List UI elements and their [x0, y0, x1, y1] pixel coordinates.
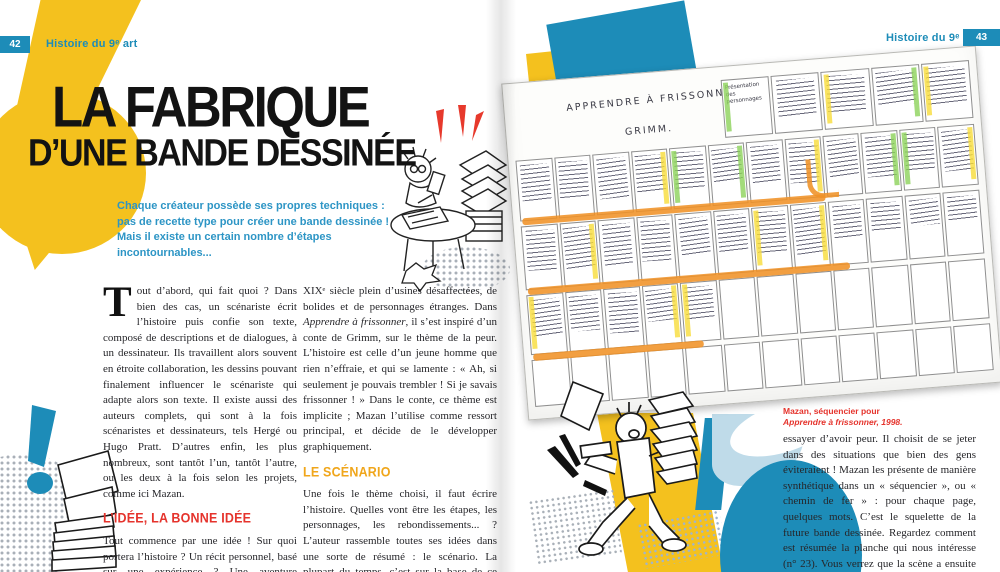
- highlighter-strip: [890, 133, 899, 185]
- sequencer-panel: [921, 60, 974, 121]
- figure-caption: Mazan, séquencier pour Apprendre à friss…: [783, 406, 903, 428]
- sequencer-panel: [762, 339, 802, 389]
- section-heading-scenario: LE SCÉNARIO: [303, 464, 497, 481]
- sequencer-panel: Présentation des personnages: [721, 77, 774, 138]
- highlighter-strip: [589, 223, 598, 278]
- drawing-table: [391, 207, 475, 273]
- sequencer-panel: [872, 264, 913, 327]
- page-number-left: 42: [0, 36, 30, 53]
- section-label-left: Histoire du 9ᵉ art: [46, 38, 137, 50]
- article-title-line1: LA FABRIQUE: [52, 74, 368, 140]
- sequencer-panel: [751, 205, 792, 272]
- intro-paragraph: Chaque créateur possède ses propres tech…: [117, 199, 399, 261]
- handwriting-scribble: [525, 229, 556, 270]
- sequencer-panel: [526, 292, 567, 355]
- handwriting-scribble: [602, 223, 634, 267]
- sequencer-panel: [554, 155, 595, 218]
- sequencer-panel: [636, 214, 677, 281]
- sequencer-panel: [828, 199, 869, 266]
- drop-cap: T: [103, 284, 137, 320]
- work-title: Apprendre à frissonner: [303, 316, 406, 328]
- handwriting-scribble: [608, 292, 639, 334]
- page-gutter: [486, 0, 516, 572]
- handwriting-scribble: [908, 198, 939, 227]
- highlighter-strip: [912, 67, 921, 116]
- sequencer-panel: [789, 202, 830, 269]
- highlighter-strip: [660, 152, 669, 204]
- section-heading-idee: L’IDÉE, LA BONNE IDÉE: [103, 511, 297, 528]
- sequencer-panel: [838, 333, 878, 383]
- paragraph-text: XIXᵉ siècle plein d’usines désaffectées,…: [303, 285, 497, 313]
- sequencer-panel: [592, 152, 633, 215]
- sequencer-panel: [866, 196, 907, 263]
- sequencer-panel: [861, 130, 902, 193]
- handwriting-scribble: [926, 66, 967, 107]
- sequencer-panel: [771, 73, 824, 134]
- sequencer-panel: [598, 217, 639, 284]
- right-column: essayer d’avoir peur. Il choisit de se j…: [783, 432, 976, 572]
- sequencer-panel: [757, 274, 798, 337]
- sequencer-panel: [948, 258, 989, 321]
- caption-line1: Mazan, séquencier pour: [783, 406, 903, 417]
- highlighter-strip: [671, 286, 680, 338]
- sequencer-panel: [871, 65, 924, 126]
- sequencer-panel: [680, 280, 721, 343]
- handwriting-scribble: [569, 294, 600, 332]
- sequencer-panel: [904, 193, 945, 260]
- sequencer-panel: [521, 223, 562, 290]
- book-spread: 42 Histoire du 9ᵉ art LA FABRIQUE D’UNE …: [0, 0, 1000, 572]
- sequencer-panel: [795, 270, 836, 333]
- sequencer-panel: [603, 286, 644, 349]
- caption-line2: Apprendre à frissonner, 1998.: [783, 417, 903, 428]
- handwriting-scribble: [520, 163, 551, 201]
- left-column-2: XIXᵉ siècle plein d’usines désaffectées,…: [303, 284, 497, 572]
- sequencer-grid: Présentation des personnages: [502, 47, 1000, 420]
- carried-paper-stack: [649, 392, 697, 484]
- blue-exclamation-mark: [27, 405, 56, 494]
- sequencer-panel: [877, 330, 917, 380]
- sequencer-panel: [899, 127, 940, 190]
- sequencer-panel: [559, 220, 600, 287]
- paragraph-text: , il s’est inspiré d’un conte de Grimm, …: [303, 316, 497, 453]
- sequencer-panel: [707, 143, 748, 206]
- handwriting-scribble: [826, 74, 866, 112]
- handwriting-scribble: [559, 161, 590, 200]
- sequencer-panel: [718, 277, 759, 340]
- paragraph: XIXᵉ siècle plein d’usines désaffectées,…: [303, 284, 497, 456]
- running-character-illustration: [545, 372, 735, 572]
- paragraph: Une fois le thème choisi, il faut écrire…: [303, 487, 497, 572]
- sequencer-panel: [833, 267, 874, 330]
- sequencer-panel: [800, 336, 840, 386]
- handwriting-scribble: [750, 145, 782, 185]
- handwriting-scribble: [596, 157, 629, 200]
- handwriting-scribble: [641, 220, 672, 261]
- handwriting-scribble: [776, 78, 817, 119]
- page-number-right: 43: [963, 29, 1000, 46]
- article-title-line2: D’UNE BANDE DESSINÉE: [28, 132, 416, 176]
- sequencer-panel: [713, 208, 754, 275]
- sequencer-panel: [669, 146, 710, 209]
- sequencer-panel: [674, 211, 715, 278]
- sequencer-panel: [915, 326, 955, 376]
- sequencer-panel: [641, 283, 682, 346]
- paragraph: Tout d’abord, qui fait quoi ? Dans bien …: [103, 284, 297, 502]
- handwriting-scribble: [871, 202, 901, 232]
- sequencer-panel: [943, 189, 984, 256]
- falling-paper: [561, 382, 603, 430]
- sequencer-row: Présentation des personnages: [721, 60, 974, 137]
- sequencer-panel: [516, 158, 557, 221]
- sequencer-panel: [821, 69, 874, 130]
- handwriting-scribble: [717, 214, 749, 254]
- handwriting-scribble: [947, 195, 977, 221]
- paragraph: Tout commence par une idée ! Sur quoi po…: [103, 534, 297, 572]
- sequencer-panel: [938, 124, 979, 187]
- sequencer-panel: [746, 140, 787, 203]
- sequencer-panel: [631, 149, 672, 212]
- red-emphasis-marks: [436, 105, 484, 143]
- highlighter-strip: [737, 146, 746, 198]
- left-column-1: Tout d’abord, qui fait quoi ? Dans bien …: [103, 284, 297, 572]
- sequencer-panel: [910, 261, 951, 324]
- handwriting-scribble: [678, 216, 710, 256]
- sequencer-sheet-photo: APPRENDRE À FRISSONNER GRIMM. Présentati…: [501, 45, 1000, 420]
- sequencer-panel: [954, 323, 994, 373]
- paragraph-text: Une fois le thème choisi, il faut écrire…: [303, 488, 497, 572]
- highlighter-strip: [967, 127, 976, 179]
- handwriting-scribble: [875, 69, 917, 106]
- sequencer-panel: [565, 289, 606, 352]
- handwriting-scribble: [832, 204, 863, 239]
